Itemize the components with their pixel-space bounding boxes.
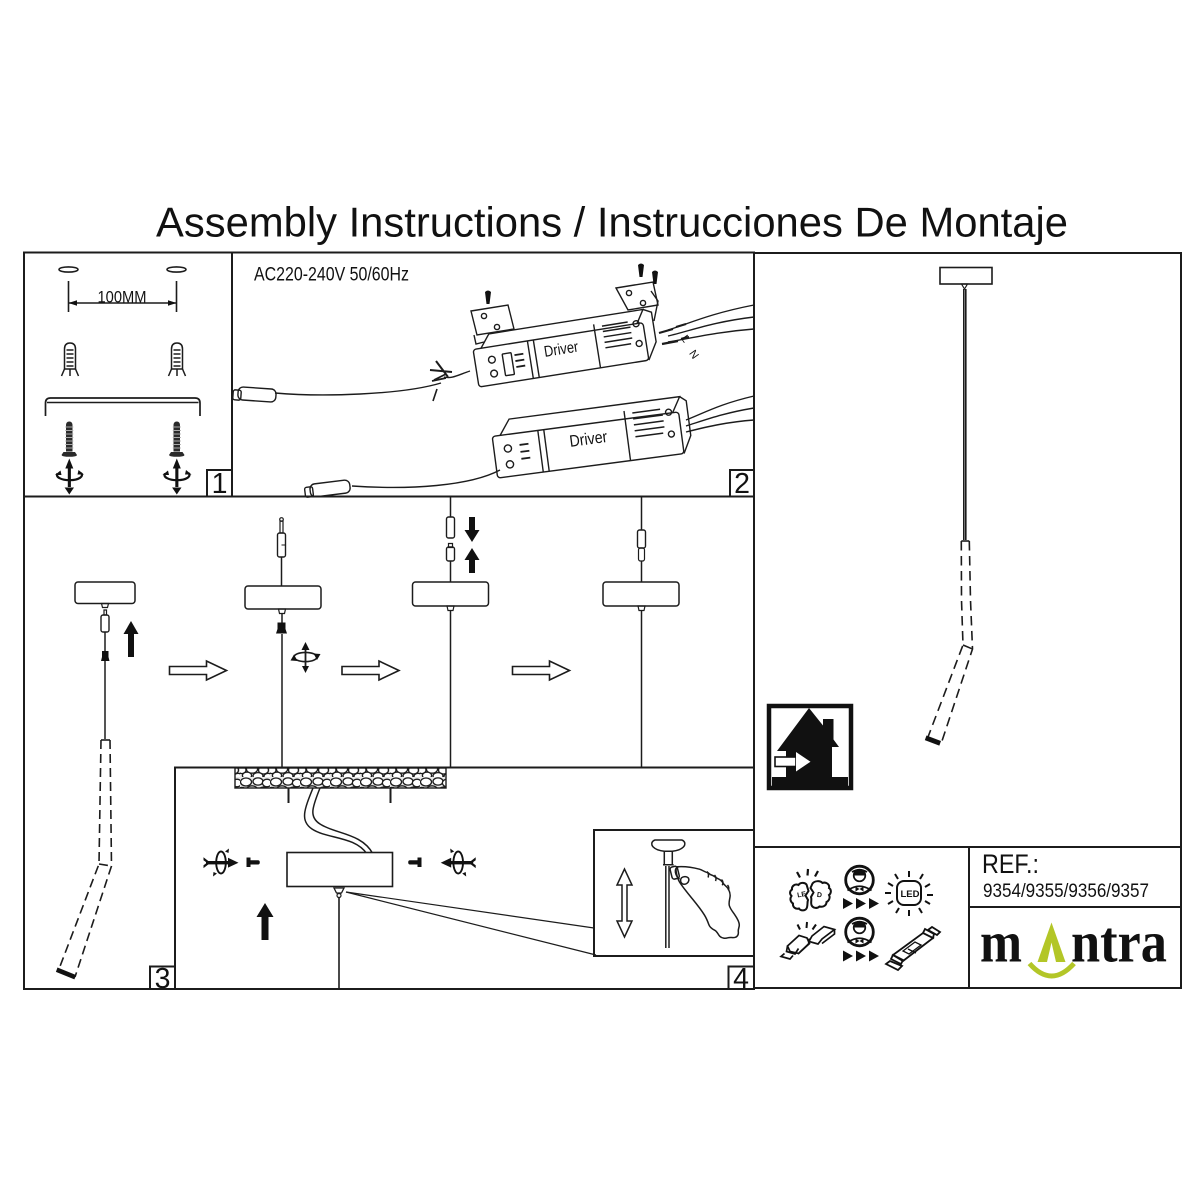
svg-text:100MM: 100MM	[98, 288, 147, 307]
svg-text:m: m	[980, 910, 1022, 975]
svg-text:2: 2	[734, 468, 750, 500]
svg-text:1: 1	[212, 468, 228, 500]
svg-text:Assembly Instructions / Instru: Assembly Instructions / Instrucciones De…	[156, 199, 1068, 246]
svg-text:3: 3	[155, 963, 171, 995]
svg-text:AC220-240V 50/60Hz: AC220-240V 50/60Hz	[254, 265, 409, 286]
svg-text:LED: LED	[901, 889, 920, 900]
svg-text:D: D	[816, 892, 822, 900]
svg-text:9354/9355/9356/9357: 9354/9355/9356/9357	[983, 880, 1149, 902]
svg-text:4: 4	[733, 963, 749, 995]
svg-text:REF.:: REF.:	[982, 849, 1039, 879]
svg-text:ntra: ntra	[1071, 910, 1167, 975]
